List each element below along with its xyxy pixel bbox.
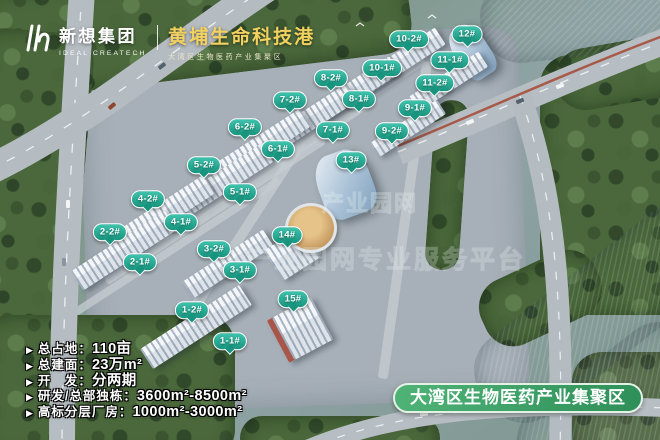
building-label-5-1: 5-1# — [223, 183, 257, 201]
project-subtitle: 大湾区生物医药产业集聚区 — [168, 52, 315, 62]
building-label-14: 14# — [272, 226, 303, 244]
stat-line: ▶总占地：110亩 — [26, 343, 247, 358]
stat-value: 110亩 — [92, 343, 132, 357]
building-label-8-1: 8-1# — [342, 90, 376, 108]
building-label-10-1: 10-1# — [362, 59, 402, 77]
building-label-6-2: 6-2# — [228, 118, 262, 136]
building-label-13: 13# — [336, 151, 367, 169]
building-label-3-1: 3-1# — [223, 261, 257, 279]
stat-line: ▶总建面：23万m² — [26, 359, 247, 374]
stat-label: 研发/总部独栋： — [38, 390, 137, 404]
triangle-bullet-icon: ▶ — [26, 391, 33, 405]
company-block: 新想集团 IDEAL CREATECH — [59, 22, 147, 57]
ideal-createch-logo-icon — [22, 22, 52, 54]
company-name: 新想集团 — [59, 22, 147, 47]
building-label-12: 12# — [452, 25, 483, 43]
logo-divider — [157, 25, 159, 50]
stat-label: 总占地： — [38, 343, 92, 357]
building-label-9-2: 9-2# — [375, 122, 409, 140]
building-label-2-2: 2-2# — [93, 223, 127, 241]
poster: 产业园网 产业园网专业服务平台 10-2#12#11-1#10-1#8-2#11… — [0, 0, 660, 440]
building-label-3-2: 3-2# — [197, 240, 231, 258]
building-label-1-2: 1-2# — [175, 301, 209, 319]
triangle-bullet-icon: ▶ — [26, 344, 33, 358]
building-label-7-2: 7-2# — [273, 91, 307, 109]
stat-line: ▶高标分层厂房：1000m²-3000m² — [26, 406, 247, 421]
building-label-5-2: 5-2# — [187, 156, 221, 174]
building-label-15: 15# — [278, 290, 309, 308]
stat-line: ▶研发/总部独栋：3600m²-8500m² — [26, 390, 247, 405]
building-label-6-1: 6-1# — [261, 140, 295, 158]
logo-lockup: 新想集团 IDEAL CREATECH 黄埔生命科技港 大湾区生物医药产业集聚区 — [22, 22, 315, 62]
region-banner: 大湾区生物医药产业集聚区 — [393, 383, 643, 413]
building-label-11-1: 11-1# — [430, 51, 469, 69]
stat-value: 3600m²-8500m² — [137, 390, 247, 404]
stat-value: 分两期 — [92, 375, 137, 389]
building-label-10-2: 10-2# — [389, 30, 429, 48]
triangle-bullet-icon: ▶ — [26, 360, 33, 374]
stat-label: 高标分层厂房： — [38, 406, 133, 420]
building-label-4-2: 4-2# — [131, 190, 165, 208]
triangle-bullet-icon: ▶ — [26, 407, 33, 421]
building-label-7-1: 7-1# — [316, 121, 350, 139]
triangle-bullet-icon: ▶ — [26, 376, 33, 390]
company-name-en: IDEAL CREATECH — [59, 50, 147, 57]
building-label-4-1: 4-1# — [164, 213, 198, 231]
stats-list: ▶总占地：110亩▶总建面：23万m²▶开 发：分两期▶研发/总部独栋：3600… — [26, 343, 247, 422]
building-label-8-2: 8-2# — [314, 69, 348, 87]
stat-value: 1000m²-3000m² — [132, 406, 242, 420]
stat-value: 23万m² — [92, 359, 142, 373]
project-title: 黄埔生命科技港 — [168, 22, 315, 49]
building-label-11-2: 11-2# — [415, 74, 454, 92]
building-label-2-1: 2-1# — [123, 253, 157, 271]
project-block: 黄埔生命科技港 大湾区生物医药产业集聚区 — [168, 22, 315, 62]
stat-label: 总建面： — [38, 359, 92, 373]
stat-label: 开 发： — [38, 375, 92, 389]
building-label-9-1: 9-1# — [398, 99, 432, 117]
